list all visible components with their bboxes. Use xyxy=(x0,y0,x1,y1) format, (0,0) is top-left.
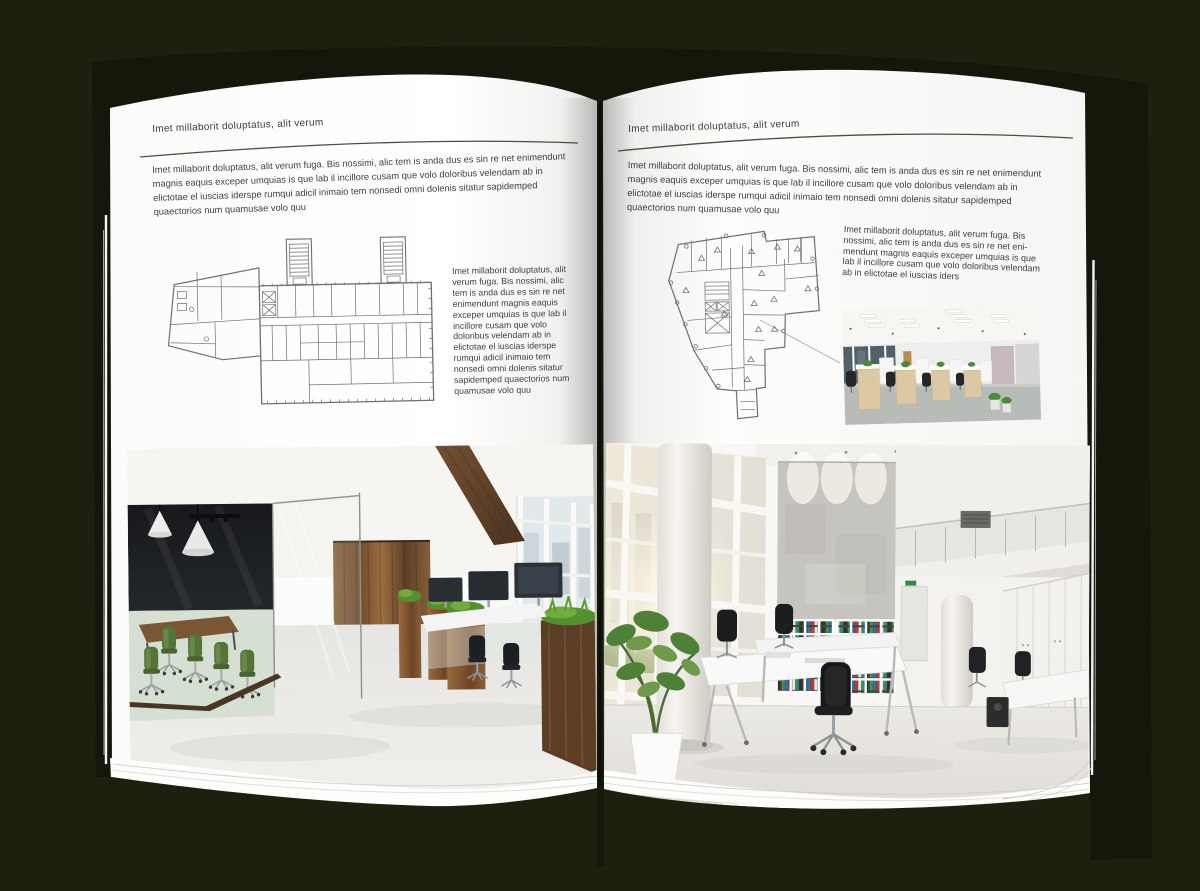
right-office-photo xyxy=(604,443,1090,806)
left-office-photo xyxy=(127,444,597,794)
magazine-mockup: Imet millaborit doluptatus, alit verum I… xyxy=(0,0,1200,891)
concrete-wall xyxy=(777,452,896,621)
right-page-intro: Imet millaborit doluptatus, alit verum f… xyxy=(627,158,1048,223)
right-floor-plan xyxy=(646,218,835,432)
small-office-photo xyxy=(842,304,1041,425)
left-plan-caption: Imet millaborit doluptatus, alit verum f… xyxy=(452,264,578,397)
column-small xyxy=(941,595,974,709)
left-floor-plan xyxy=(158,222,448,429)
right-plan-caption: Imet millaborit doluptatus, alit verum f… xyxy=(842,224,1042,286)
